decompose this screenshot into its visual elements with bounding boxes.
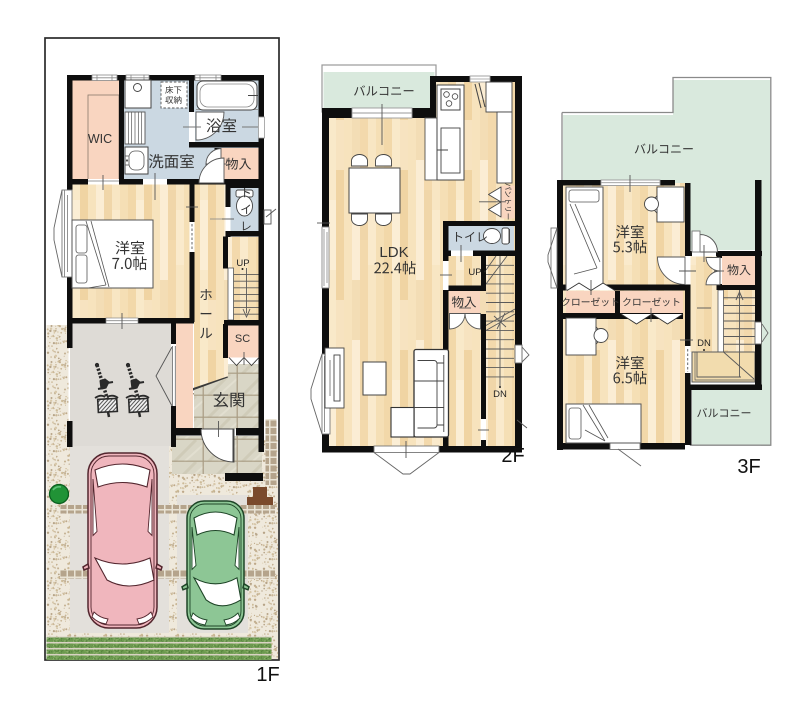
svg-text:3F: 3F [737,456,760,478]
svg-text:1F: 1F [256,664,279,686]
svg-text:SC: SC [235,333,250,345]
svg-text:DN: DN [493,389,507,400]
svg-text:2F: 2F [501,445,524,467]
svg-text:UP: UP [236,258,249,269]
svg-text:DN: DN [697,338,711,349]
svg-text:UP: UP [468,267,481,278]
svg-text:LDK: LDK [379,244,408,261]
svg-text:WIC: WIC [88,132,112,146]
